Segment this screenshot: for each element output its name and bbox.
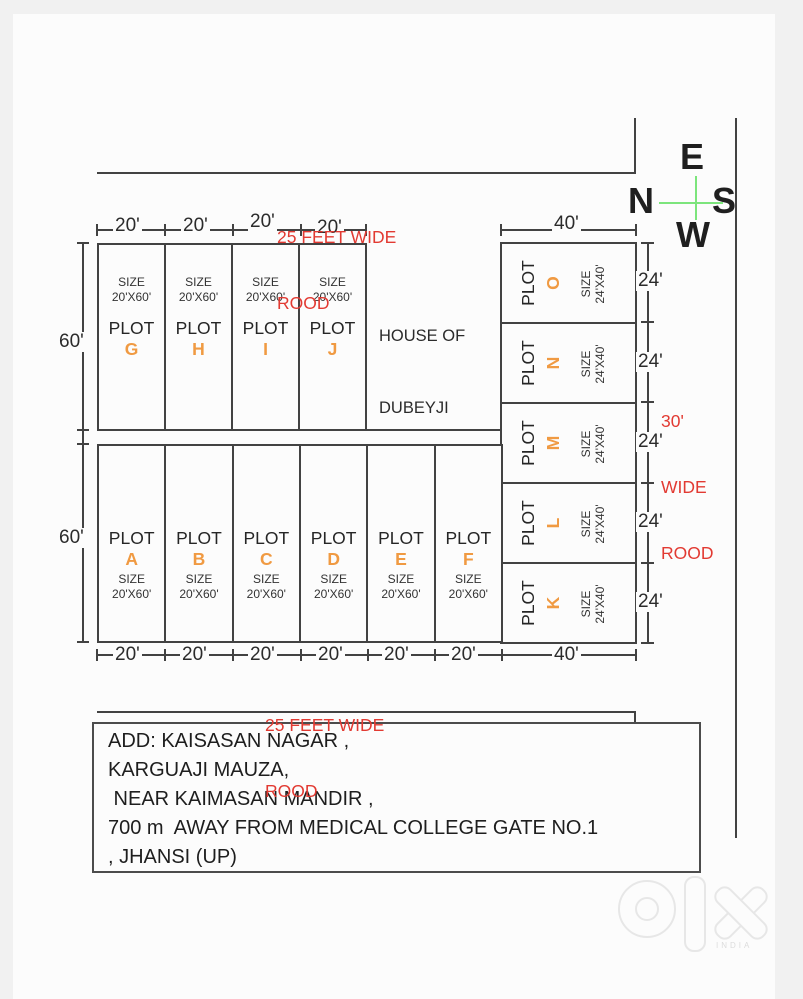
top-road-label-line1: 25 FEET WIDE — [277, 226, 396, 248]
right-road-label-line2: WIDE — [661, 476, 714, 498]
address-line-5: , JHANSI (UP) — [108, 843, 699, 872]
size-value: 24'X40' — [594, 406, 608, 482]
dim-label-bottom-6: 20' — [449, 645, 478, 665]
dim-tick — [77, 429, 89, 431]
olx-l-icon — [684, 876, 706, 952]
olx-watermark-logo: INDIA — [612, 872, 777, 957]
plot-size: SIZE 24'X40' — [580, 326, 608, 402]
plot-cell-M: PLOT M SIZE 24'X40' — [502, 404, 635, 484]
dim-label-left-upper: 60' — [57, 332, 86, 352]
dim-tick — [641, 242, 654, 244]
size-value: 20'X60' — [112, 290, 151, 305]
dim-tick — [77, 443, 89, 445]
dim-tick — [367, 649, 369, 661]
size-value: 20'X60' — [381, 587, 420, 602]
size-value: 20'X60' — [314, 587, 353, 602]
dim-label-left-lower: 60' — [57, 528, 86, 548]
plot-letter: M — [542, 403, 564, 483]
dim-tick — [501, 649, 503, 661]
dim-tick — [77, 242, 89, 244]
dim-label-top-3: 20' — [248, 212, 277, 232]
size-value: 20'X60' — [247, 587, 286, 602]
dim-tick — [641, 321, 654, 323]
plot-letter: G — [125, 339, 139, 360]
size-value: 24'X40' — [594, 326, 608, 402]
size-label: SIZE — [455, 572, 482, 587]
size-label: SIZE — [580, 486, 594, 562]
plot-word: PLOT — [517, 563, 539, 643]
size-label: SIZE — [118, 572, 145, 587]
olx-india-label: INDIA — [716, 941, 752, 950]
plot-cell-D: PLOT D SIZE 20'X60' — [301, 446, 368, 641]
dim-label-right-1: 24' — [636, 271, 665, 291]
plot-word: PLOT — [445, 528, 491, 549]
plot-letter: E — [395, 549, 407, 570]
size-value: 24'X40' — [594, 486, 608, 562]
plot-word: PLOT — [517, 483, 539, 563]
size-value: 20'X60' — [449, 587, 488, 602]
plot-cell-O: PLOT O SIZE 24'X40' — [502, 244, 635, 324]
plot-word: PLOT — [176, 528, 222, 549]
dim-tick — [300, 649, 302, 661]
right-road-line — [735, 118, 737, 838]
dim-label-top-right: 40' — [552, 214, 581, 234]
compass-east-label: E — [680, 142, 704, 172]
dim-tick — [635, 224, 637, 236]
size-label: SIZE — [252, 275, 279, 290]
dim-tick — [500, 224, 502, 236]
size-label: SIZE — [253, 572, 280, 587]
size-value: 24'X40' — [594, 246, 608, 322]
dim-tick — [635, 649, 637, 661]
plot-cell-K: PLOT K SIZE 24'X40' — [502, 564, 635, 642]
size-value: 20'X60' — [179, 290, 218, 305]
size-label: SIZE — [580, 246, 594, 322]
plot-cell-L: PLOT L SIZE 24'X40' — [502, 484, 635, 564]
address-line-3: NEAR KAIMASAN MANDIR , — [108, 785, 699, 814]
plot-letter: F — [463, 549, 474, 570]
size-label: SIZE — [320, 572, 347, 587]
plot-size: SIZE 24'X40' — [580, 566, 608, 642]
dim-label-bottom-7: 40' — [552, 645, 581, 665]
plot-word: PLOT — [517, 323, 539, 403]
plot-cell-E: PLOT E SIZE 20'X60' — [368, 446, 435, 641]
plot-row-bottom: PLOT A SIZE 20'X60' PLOT B SIZE 20'X60' … — [97, 444, 503, 643]
size-label: SIZE — [185, 275, 212, 290]
plot-cell-C: PLOT C SIZE 20'X60' — [234, 446, 301, 641]
address-line-1: ADD: KAISASAN NAGAR , — [108, 727, 699, 756]
size-label: SIZE — [186, 572, 213, 587]
dim-tick — [232, 224, 234, 236]
plot-letter: O — [542, 243, 564, 323]
plot-word: PLOT — [311, 528, 357, 549]
dim-tick — [96, 649, 98, 661]
plot-cell-F: PLOT F SIZE 20'X60' — [436, 446, 501, 641]
bottom-road-stub-line — [634, 711, 636, 722]
size-label: SIZE — [580, 566, 594, 642]
dim-tick — [641, 401, 654, 403]
size-value: 20'X60' — [112, 587, 151, 602]
olx-o-inner-icon — [635, 897, 659, 921]
plot-cell-N: PLOT N SIZE 24'X40' — [502, 324, 635, 404]
address-line-2: KARGUAJI MAUZA, — [108, 756, 699, 785]
site-plan-image: E N S W 25 FEET WIDE ROOD 30' WIDE ROOD … — [0, 0, 803, 999]
plot-letter: L — [542, 483, 564, 563]
compass-west-label: W — [676, 220, 710, 250]
plot-word: PLOT — [517, 403, 539, 483]
house-label-line2: DUBEYJI — [379, 396, 465, 420]
right-road-label-line3: ROOD — [661, 542, 714, 564]
plot-size: SIZE 24'X40' — [580, 486, 608, 562]
dim-label-bottom-3: 20' — [248, 645, 277, 665]
plot-letter: D — [327, 549, 340, 570]
size-value: 24'X40' — [594, 566, 608, 642]
dim-tick — [641, 642, 654, 644]
bottom-road-label-line1: 25 FEET WIDE — [265, 714, 384, 736]
plot-word: PLOT — [517, 243, 539, 323]
plot-letter: K — [542, 563, 564, 643]
size-label: SIZE — [118, 275, 145, 290]
plot-cell-A: PLOT A SIZE 20'X60' — [99, 446, 166, 641]
plot-word: PLOT — [243, 528, 289, 549]
compass-north-label: N — [628, 186, 654, 216]
size-label: SIZE — [388, 572, 415, 587]
address-box: ADD: KAISASAN NAGAR , KARGUAJI MAUZA, NE… — [92, 722, 701, 873]
dim-tick — [96, 224, 98, 236]
dim-tick — [164, 649, 166, 661]
plot-cell-G: SIZE 20'X60' PLOT G — [99, 245, 166, 429]
plot-size: SIZE 24'X40' — [580, 406, 608, 482]
dim-tick — [641, 562, 654, 564]
top-road-line — [97, 172, 636, 174]
plot-letter: H — [192, 339, 205, 360]
dim-tick — [232, 649, 234, 661]
dim-tick — [77, 641, 89, 643]
plot-word: PLOT — [109, 528, 155, 549]
plot-column-right: PLOT O SIZE 24'X40' PLOT N SIZE 24'X40' … — [500, 242, 637, 644]
bottom-road-label-line2: ROOD — [265, 780, 384, 802]
size-label: SIZE — [580, 326, 594, 402]
dim-label-bottom-1: 20' — [113, 645, 142, 665]
dim-label-bottom-5: 20' — [382, 645, 411, 665]
plot-cell-B: PLOT B SIZE 20'X60' — [166, 446, 233, 641]
plot-letter: A — [125, 549, 138, 570]
size-label: SIZE — [580, 406, 594, 482]
address-line-4: 700 m AWAY FROM MEDICAL COLLEGE GATE NO.… — [108, 814, 699, 843]
plot-letter: I — [263, 339, 268, 360]
top-road-label-line2: ROOD — [277, 292, 396, 314]
plot-word: PLOT — [378, 528, 424, 549]
dim-tick — [641, 482, 654, 484]
dim-label-top-1: 20' — [113, 216, 142, 236]
plot-word: PLOT — [109, 318, 155, 339]
plot-letter: N — [542, 323, 564, 403]
plot-letter: C — [260, 549, 273, 570]
top-road-stub-line — [634, 118, 636, 173]
plot-letter: B — [193, 549, 206, 570]
dim-label-bottom-2: 20' — [180, 645, 209, 665]
plot-word: PLOT — [176, 318, 222, 339]
top-road-label: 25 FEET WIDE ROOD — [277, 182, 396, 358]
compass-south-label: S — [712, 186, 736, 216]
right-road-label: 30' WIDE ROOD — [661, 366, 714, 608]
dim-tick — [434, 649, 436, 661]
plot-size: SIZE 24'X40' — [580, 246, 608, 322]
size-value: 20'X60' — [179, 587, 218, 602]
dim-label-top-2: 20' — [181, 216, 210, 236]
plot-cell-H: SIZE 20'X60' PLOT H — [166, 245, 233, 429]
dim-label-bottom-4: 20' — [316, 645, 345, 665]
bottom-road-label: 25 FEET WIDE ROOD — [265, 670, 384, 846]
right-road-label-line1: 30' — [661, 410, 714, 432]
dim-tick — [164, 224, 166, 236]
